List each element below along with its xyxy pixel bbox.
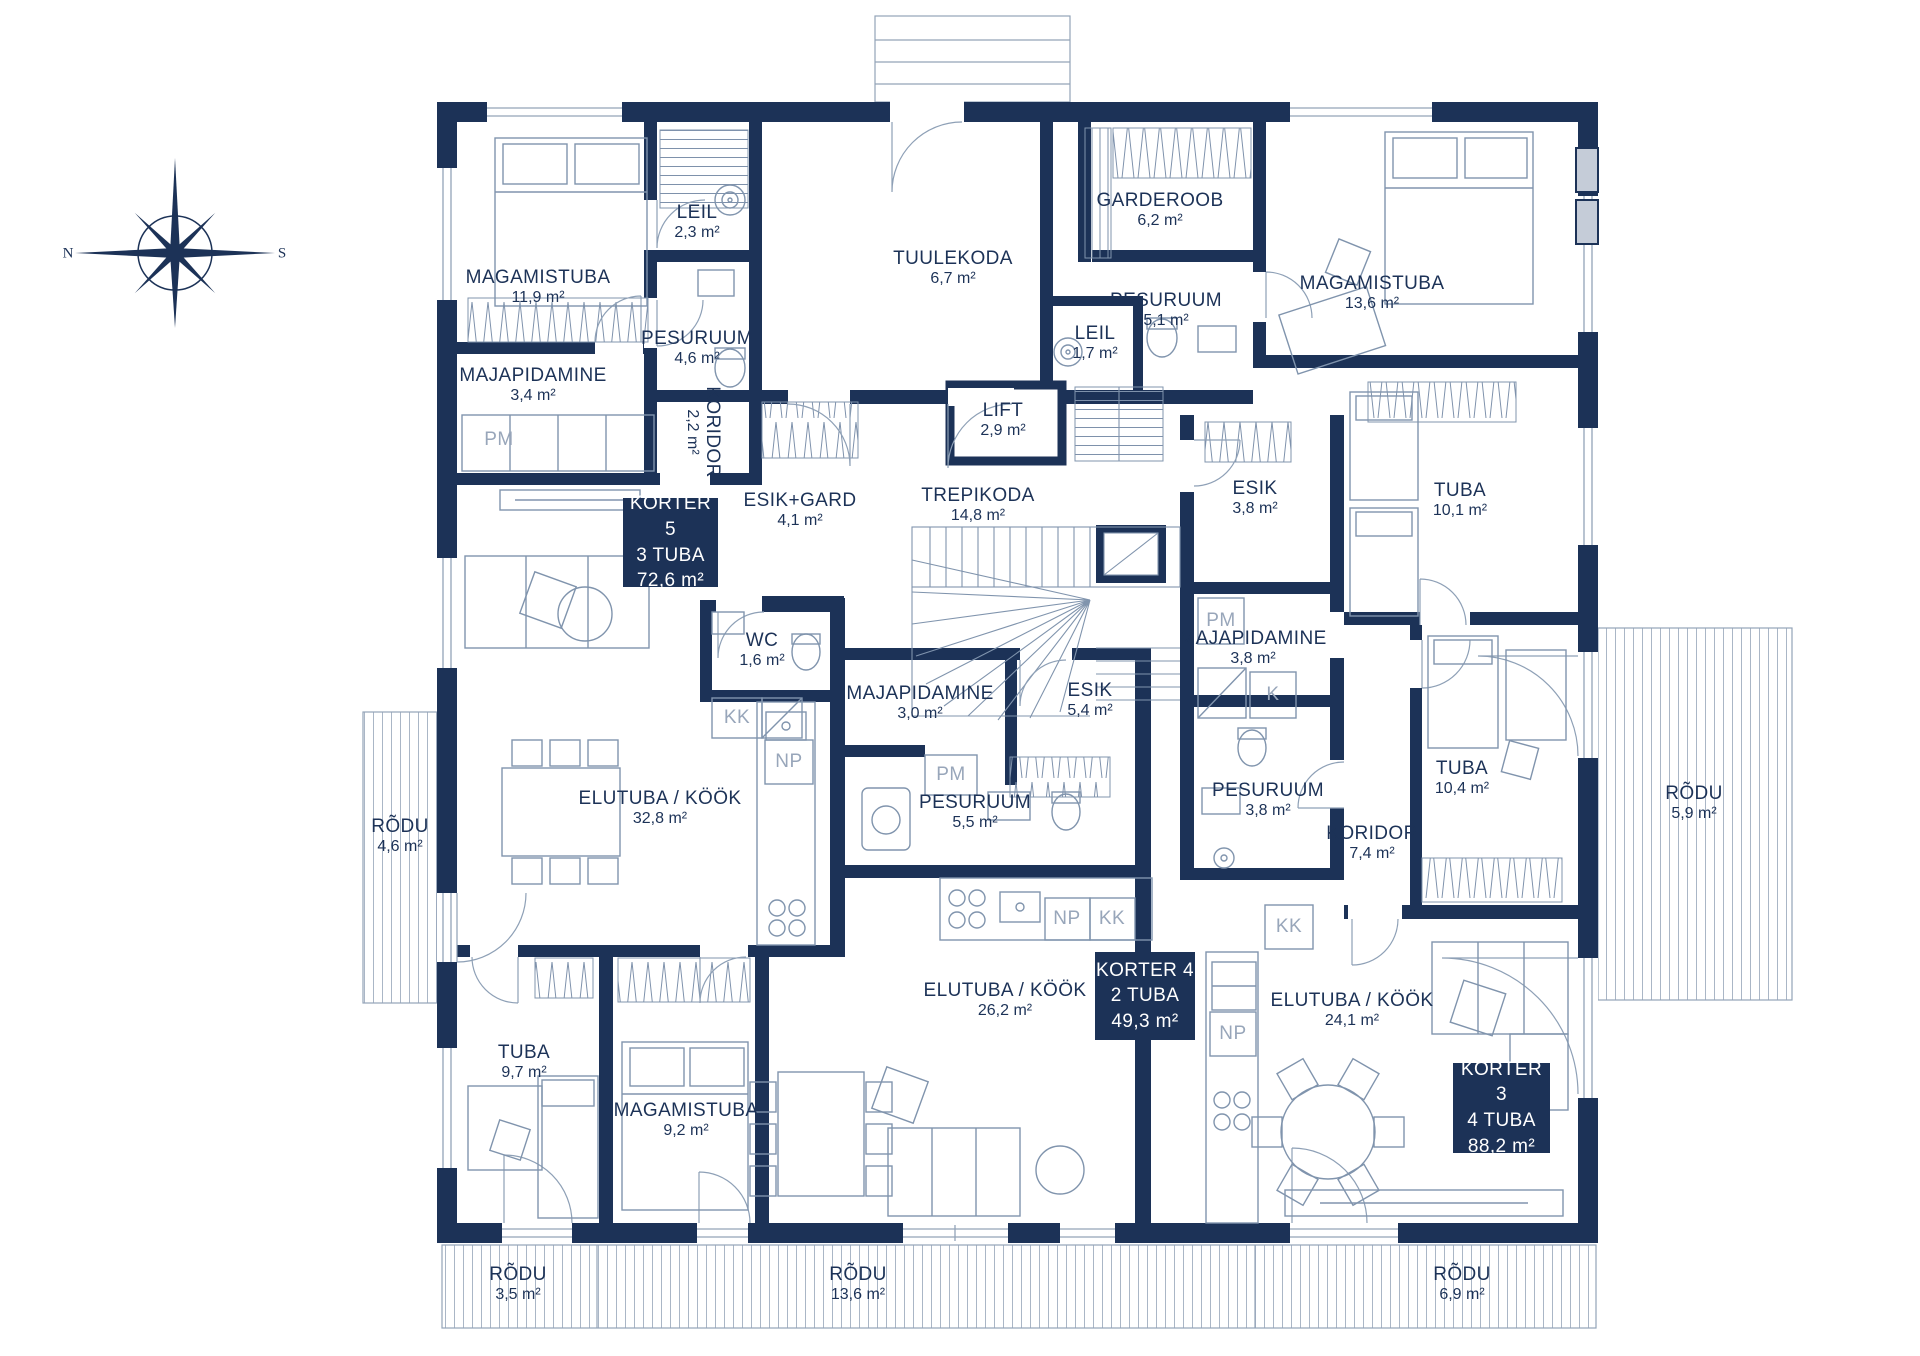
apartment-rooms: 3 TUBA bbox=[636, 543, 705, 569]
room-label-koridor-22: KORIDOR2,2 m² bbox=[683, 386, 723, 477]
room-label-elutuba-241: ELUTUBA / KÖÖK24,1 m² bbox=[1271, 990, 1434, 1030]
room-label-majapidamine-38: MAJAPIDAMINE3,8 m² bbox=[1179, 628, 1326, 668]
room-label-magamistuba-119: MAGAMISTUBA11,9 m² bbox=[466, 267, 611, 307]
apartment-badge-korter-5: KORTER 5 3 TUBA 72,6 m² bbox=[623, 498, 718, 587]
cabinet-label-pm-3: PM bbox=[1206, 610, 1236, 632]
room-label-tuba-104: TUBA10,4 m² bbox=[1435, 758, 1489, 798]
cabinet-label-pm-2: PM bbox=[936, 764, 966, 786]
room-label-garderoob: GARDEROOB6,2 m² bbox=[1096, 190, 1223, 230]
room-label-magamistuba-92: MAGAMISTUBA9,2 m² bbox=[614, 1100, 759, 1140]
entrance-canopy bbox=[875, 16, 1070, 102]
floor-plan-page: N S KORTER 5 3 TUBA 72,6 m² KORTER 4 2 T… bbox=[0, 0, 1920, 1356]
cabinet-label-kk-3: KK bbox=[1276, 916, 1302, 938]
apartment-name: KORTER 4 bbox=[1096, 958, 1194, 984]
room-label-pesuruum-38: PESURUUM3,8 m² bbox=[1212, 780, 1324, 820]
cabinet-label-np-1: NP bbox=[775, 751, 802, 773]
apartment-area: 88,2 m² bbox=[1468, 1134, 1535, 1160]
compass-north-label: N bbox=[63, 246, 74, 263]
compass-south-label: S bbox=[278, 246, 286, 263]
floor-plan-drawing bbox=[0, 0, 1920, 1356]
room-label-trepikoda: TREPIKODA14,8 m² bbox=[921, 485, 1034, 525]
apartment-name: KORTER 3 bbox=[1453, 1057, 1550, 1108]
room-label-tuba-97: TUBA9,7 m² bbox=[498, 1042, 550, 1082]
room-label-magamistuba-136: MAGAMISTUBA13,6 m² bbox=[1300, 273, 1445, 313]
apartment-area: 49,3 m² bbox=[1111, 1009, 1178, 1035]
cabinet-label-k-1: K bbox=[1266, 684, 1279, 706]
room-label-wc: WC1,6 m² bbox=[739, 630, 784, 670]
room-label-majapidamine-30: MAJAPIDAMINE3,0 m² bbox=[846, 683, 993, 723]
room-label-pesuruum-46: PESURUUM4,6 m² bbox=[641, 328, 753, 368]
room-label-tuulekoda: TUULEKODA6,7 m² bbox=[893, 248, 1013, 288]
room-label-elutuba-262: ELUTUBA / KÖÖK26,2 m² bbox=[924, 980, 1087, 1020]
room-label-leil-17: LEIL1,7 m² bbox=[1072, 323, 1117, 363]
room-label-esik-54: ESIK5,4 m² bbox=[1067, 680, 1112, 720]
room-label-tuba-101: TUBA10,1 m² bbox=[1433, 480, 1487, 520]
room-label-rodu-35: RÕDU3,5 m² bbox=[489, 1264, 547, 1304]
room-label-rodu-59: RÕDU5,9 m² bbox=[1665, 783, 1723, 823]
cabinet-label-np-3: NP bbox=[1219, 1023, 1246, 1045]
cabinet-label-pm-1: PM bbox=[484, 429, 514, 451]
apartment-area: 72,6 m² bbox=[637, 568, 704, 594]
room-label-koridor-74: KORIDOR7,4 m² bbox=[1326, 823, 1417, 863]
room-label-elutuba-328: ELUTUBA / KÖÖK32,8 m² bbox=[579, 788, 742, 828]
cabinet-label-kk-2: KK bbox=[1099, 908, 1125, 930]
room-label-majapidamine-34: MAJAPIDAMINE3,4 m² bbox=[459, 365, 606, 405]
room-label-pesuruum-55: PESURUUM5,5 m² bbox=[919, 792, 1031, 832]
room-label-leil-23: LEIL2,3 m² bbox=[674, 202, 719, 242]
apartment-badge-korter-4: KORTER 4 2 TUBA 49,3 m² bbox=[1095, 952, 1195, 1040]
room-label-rodu-136: RÕDU13,6 m² bbox=[829, 1264, 887, 1304]
cabinet-label-np-2: NP bbox=[1053, 908, 1080, 930]
bench-hatches bbox=[660, 128, 1163, 461]
apartment-rooms: 2 TUBA bbox=[1111, 983, 1180, 1009]
room-label-esik-38: ESIK3,8 m² bbox=[1232, 478, 1277, 518]
apartment-rooms: 4 TUBA bbox=[1467, 1108, 1536, 1134]
room-label-lift: LIFT2,9 m² bbox=[980, 400, 1025, 440]
room-label-rodu-69: RÕDU6,9 m² bbox=[1433, 1264, 1491, 1304]
room-label-rodu-46: RÕDU4,6 m² bbox=[371, 816, 429, 856]
cabinet-label-kk-1: KK bbox=[724, 707, 750, 729]
room-label-esik-gard: ESIK+GARD4,1 m² bbox=[744, 490, 857, 530]
apartment-name: KORTER 5 bbox=[623, 491, 718, 542]
room-label-pesuruum-51: PESURUUM5,1 m² bbox=[1110, 290, 1222, 330]
compass-rose bbox=[75, 158, 275, 328]
apartment-badge-korter-3: KORTER 3 4 TUBA 88,2 m² bbox=[1453, 1063, 1550, 1153]
